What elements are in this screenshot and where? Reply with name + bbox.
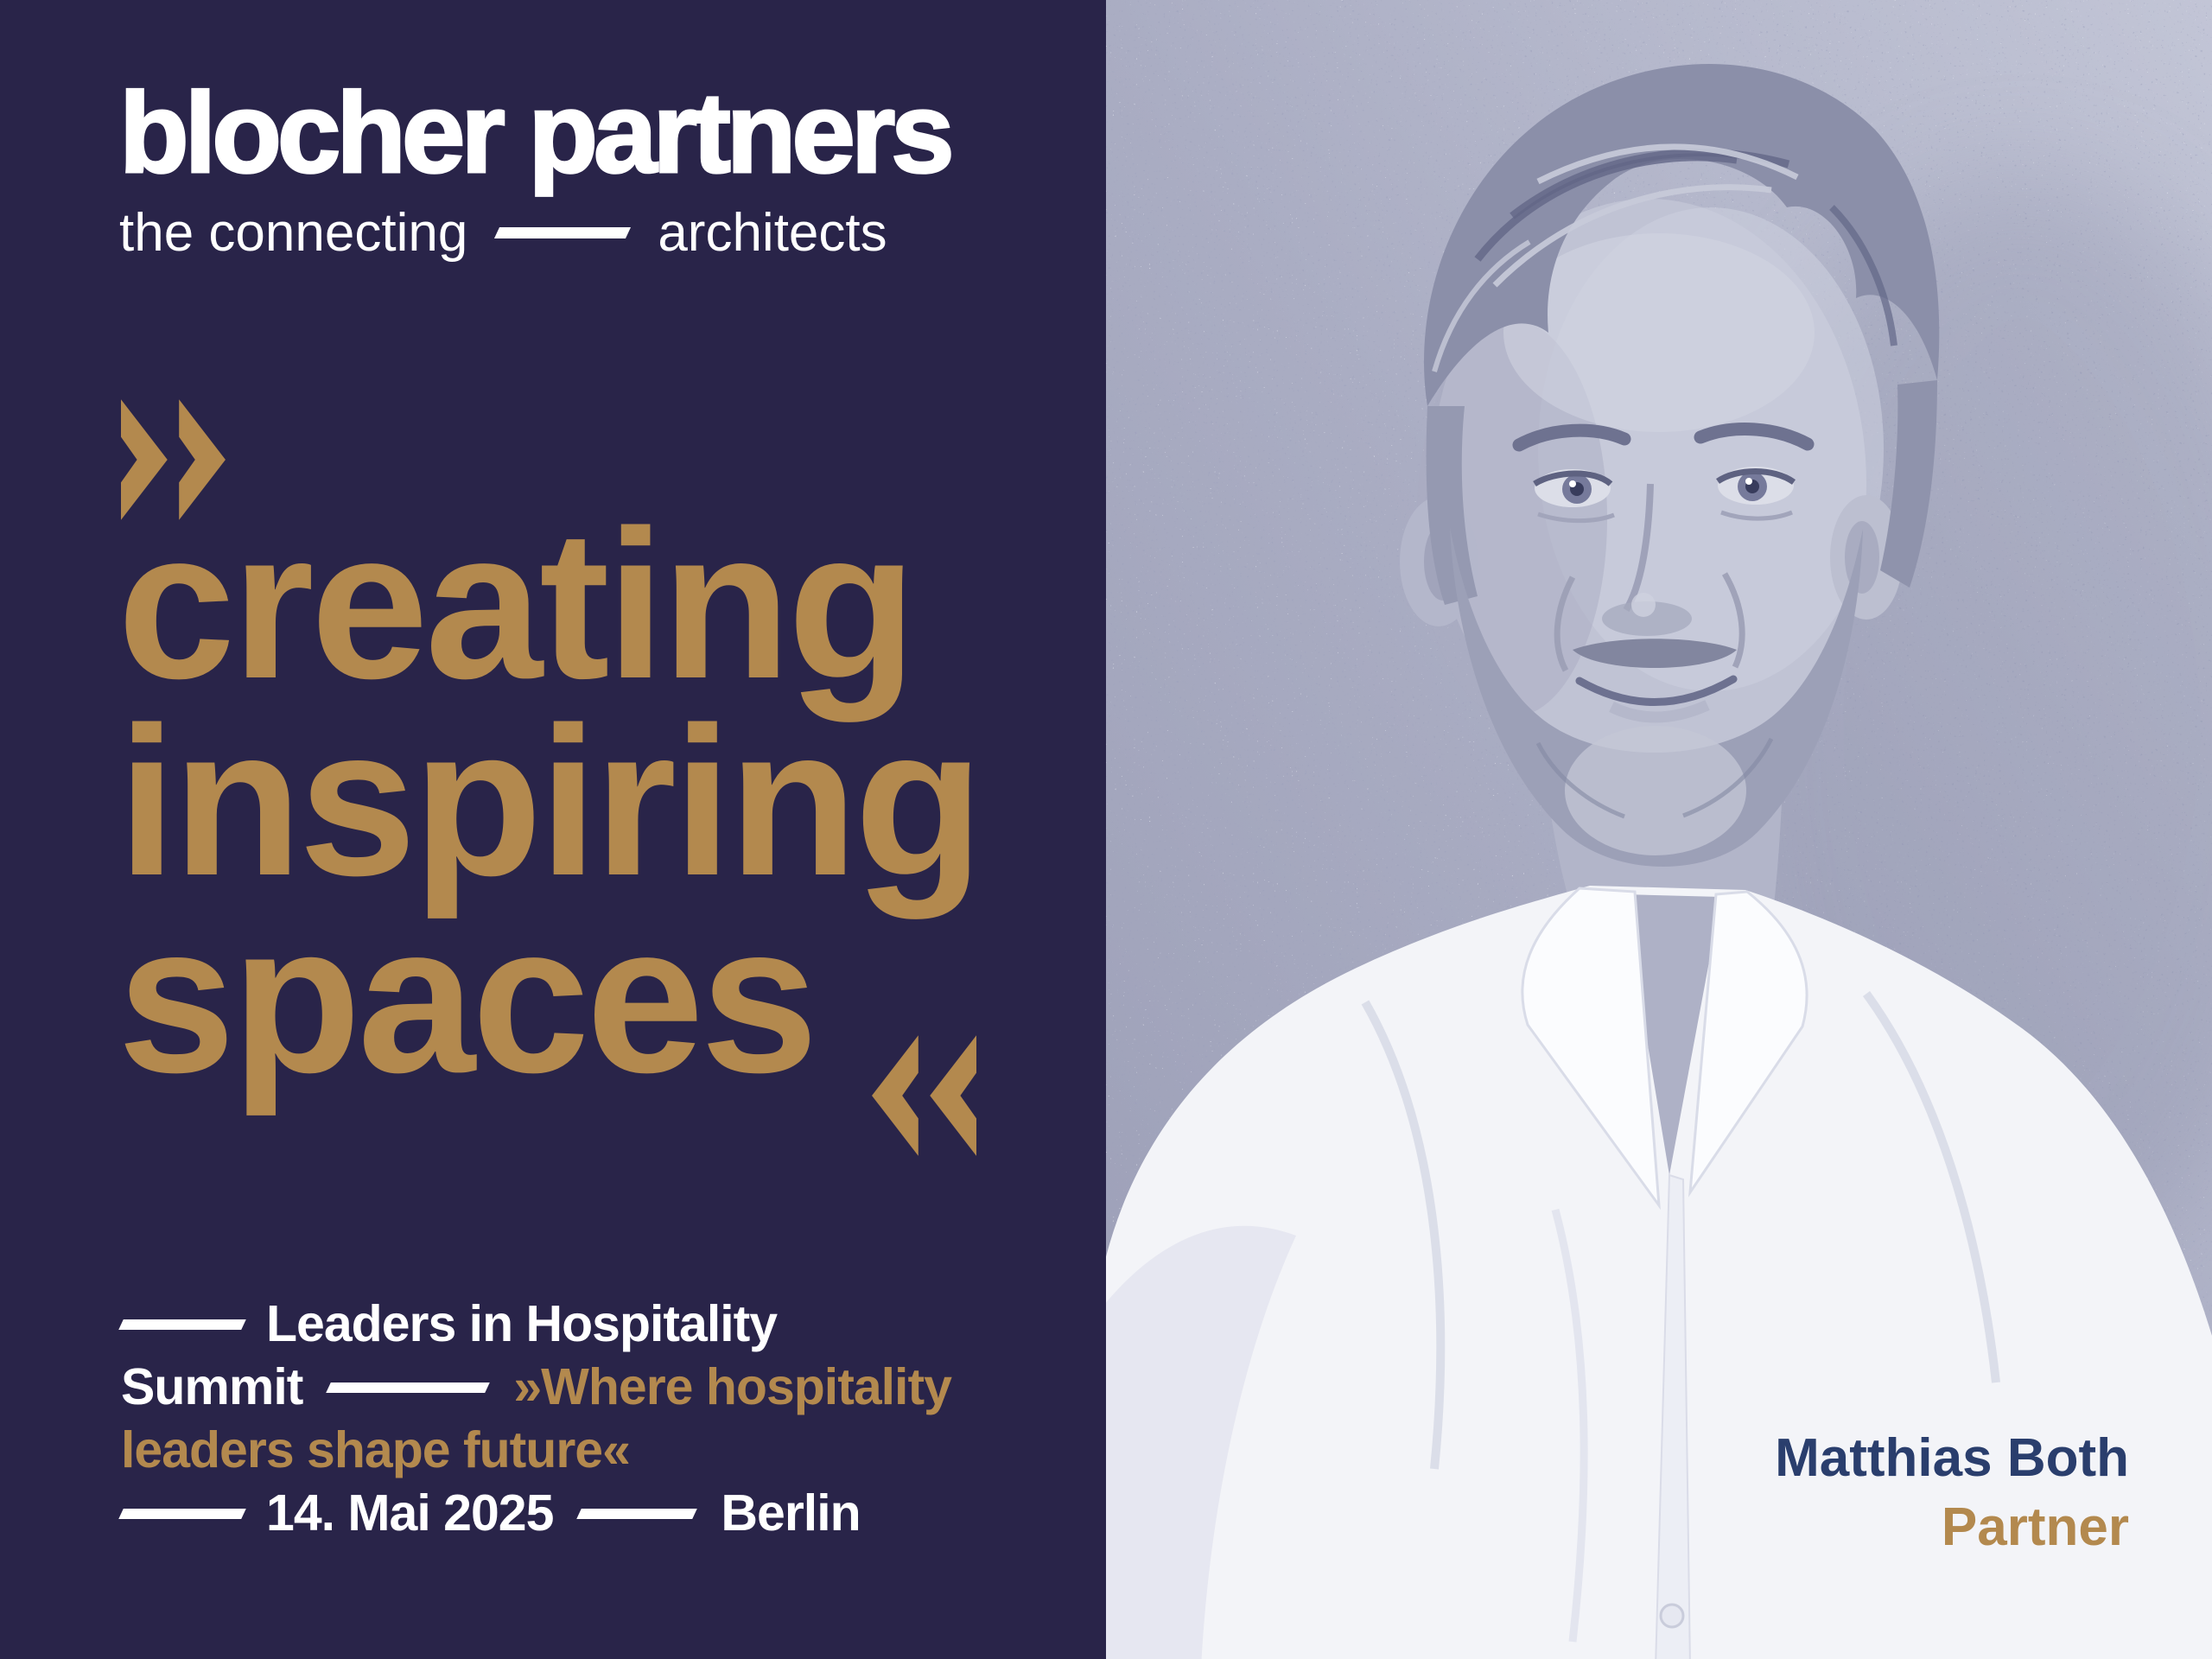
- event-motto-part1: »Where hospitality: [513, 1356, 951, 1419]
- shirt-button: [1661, 1605, 1683, 1627]
- close-guillemet-icon: [871, 1035, 976, 1156]
- event-motto-part2: leaders shape future«: [121, 1419, 630, 1482]
- headline-line-2: inspiring: [118, 702, 980, 899]
- event-line-3: leaders shape future«: [121, 1419, 951, 1482]
- brand-tagline-right: architects: [658, 202, 887, 264]
- event-banner: blocher partners the connecting architec…: [0, 0, 2212, 1659]
- dash-icon: [577, 1509, 698, 1519]
- event-city: Berlin: [721, 1482, 860, 1545]
- dash-icon: [118, 1319, 246, 1330]
- photo-panel: Matthias Both Partner: [1106, 0, 2212, 1659]
- person-role: Partner: [1775, 1493, 2129, 1562]
- dash-icon: [118, 1509, 246, 1519]
- event-title-part2: Summit: [121, 1356, 302, 1419]
- portrait-photo: [1106, 0, 2212, 1659]
- event-line-2: Summit »Where hospitality: [121, 1356, 951, 1419]
- brand-tagline-left: the connecting: [119, 202, 467, 264]
- event-date: 14. Mai 2025: [266, 1482, 553, 1545]
- dash-icon: [327, 1382, 491, 1393]
- left-panel: blocher partners the connecting architec…: [0, 0, 1106, 1659]
- brand-logo: blocher partners the connecting architec…: [119, 76, 950, 264]
- event-line-4: 14. Mai 2025 Berlin: [121, 1482, 951, 1545]
- brand-tagline: the connecting architects: [119, 202, 950, 264]
- event-details: Leaders in Hospitality Summit »Where hos…: [121, 1293, 951, 1545]
- person-caption: Matthias Both Partner: [1775, 1424, 2129, 1562]
- headline-line-3: spaces: [118, 899, 980, 1096]
- event-line-1: Leaders in Hospitality: [121, 1293, 951, 1356]
- headline: creating inspiring spaces: [118, 505, 980, 1096]
- event-title-part1: Leaders in Hospitality: [266, 1293, 777, 1356]
- brand-name: blocher partners: [119, 76, 950, 190]
- person-name: Matthias Both: [1775, 1424, 2129, 1493]
- dash-icon: [494, 227, 631, 238]
- headline-line-1: creating: [118, 505, 980, 702]
